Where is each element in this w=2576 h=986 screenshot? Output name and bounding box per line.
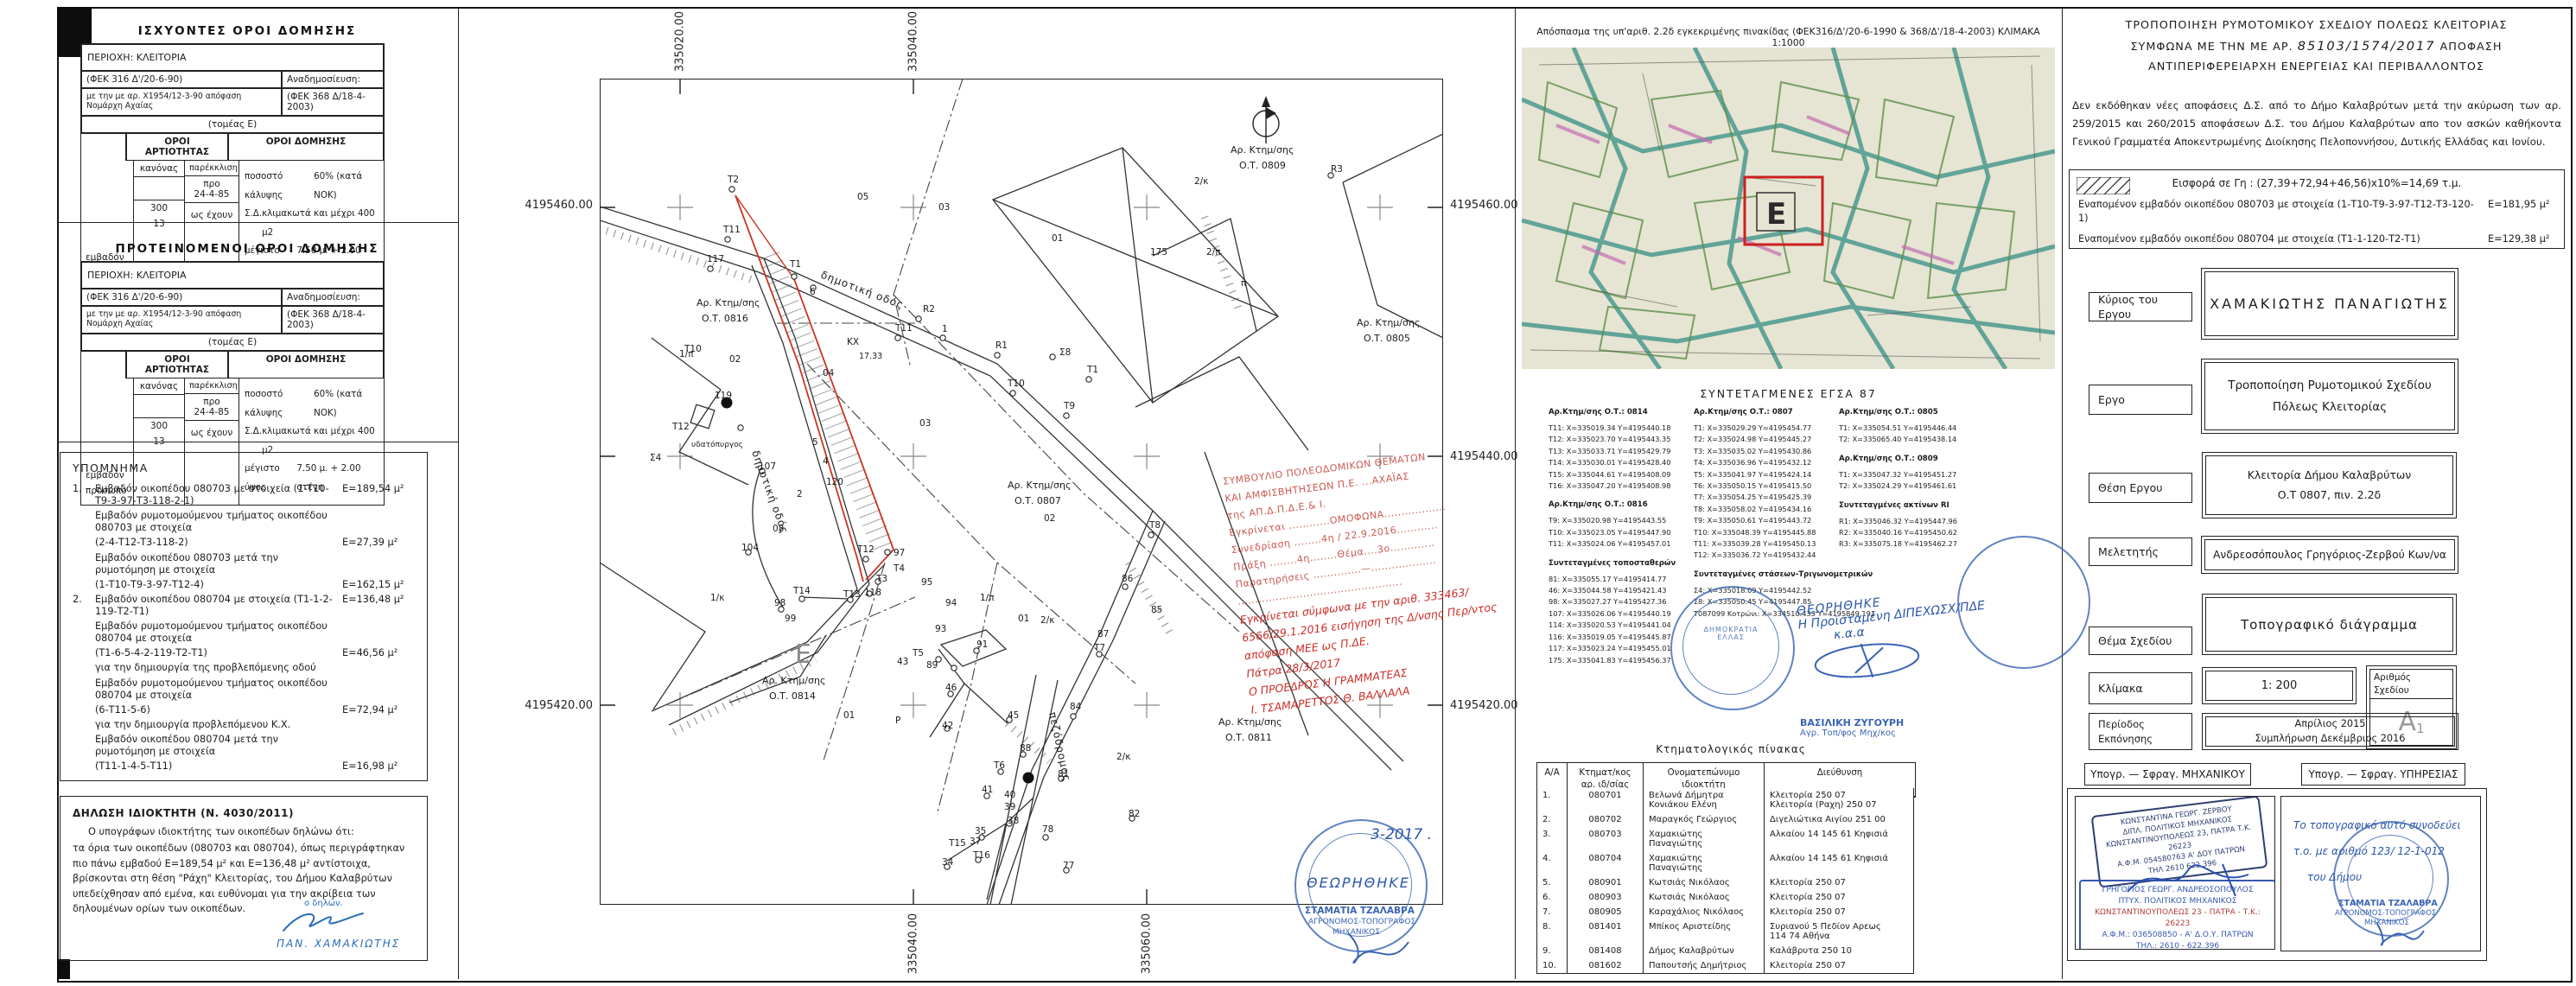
artiotita-header: ΟΡΟΙ ΑΡΤΙΟΤΗΤΑΣ [126, 133, 228, 161]
coord-group-header: Αρ.Κτημ/σης Ο.Τ.: 0807 [1694, 408, 1823, 417]
coord-row: Τ15: Χ=335044.61 Υ=4195408.09 [1549, 469, 1678, 480]
map-label: ΚΧ [847, 337, 859, 347]
coord-row: Τ2: Χ=335065.40 Υ=4195438.14 [1839, 434, 1969, 445]
legend-row: Εμβαδόν ρυμοτομούμενου τμήματος οικοπέδο… [73, 510, 417, 534]
coord-row: 98: Χ=335027.27 Υ=4195427.36 [1549, 596, 1678, 608]
coord-group-header: Συντεταγμένες τοποσταθερών [1549, 559, 1678, 568]
cadastre-row: 5. 080901 Κωτσιάς Νικόλαος Κλειτορία 250… [1537, 875, 1913, 890]
coord-row: R3: Χ=335075.18 Υ=4195462.27 [1839, 538, 1969, 550]
map-label: T3 [875, 574, 887, 584]
coord-row: Τ12: Χ=335036.72 Υ=4195432.44 [1694, 550, 1823, 561]
service-signature [2359, 918, 2428, 951]
coord-row: Τ1: Χ=335029.29 Υ=4195454.77 [1694, 423, 1823, 434]
tb-title3: ΑΝΤΙΠΕΡΙΦΕΡΕΙΑΡΧΗ ΕΝΕΡΓΕΙΑΣ ΚΑΙ ΠΕΡΙΒΑΛΛ… [2062, 60, 2571, 73]
declaration-box: ΔΗΛΩΣΗ ΙΔΙΟΚΤΗΤΗ (Ν. 4030/2011) Ο υπογρά… [60, 796, 428, 961]
map-label: T6 [993, 760, 1005, 771]
map-label: Σ8 [1059, 347, 1071, 358]
zoning-panel: ΙΣΧΥΟΝΤΕΣ ΟΡΟΙ ΔΟΜΗΣΗΣ ΠΕΡΙΟΧΗ: ΚΛΕΙΤΟΡΙ… [57, 7, 458, 979]
map-label: 87 [1097, 629, 1109, 639]
map-label: Αρ. Κτημ/σης [1231, 144, 1294, 156]
grid-label-bottom-1: 335040.00 [907, 913, 920, 974]
sig-header-service: Υπογρ. — Σφραγ. ΥΠΗΡΕΣΙΑΣ [2301, 763, 2465, 786]
legend-row: Εμβαδόν ρυμοτομούμενου τμήματος οικοπέδο… [73, 677, 417, 702]
map-label: 91 [976, 639, 988, 650]
engineer-stamp-box: ΚΩΝΣΤΑΝΤΙΝΑ ΓΕΩΡΓ. ΖΕΡΒΟΥΔΙΠΛ. ΠΟΛΙΤΙΚΟΣ… [2075, 796, 2275, 950]
field-value-period: Απρίλιος 2015 Συμπλήρωση Δεκέμβριος 2016 [2202, 713, 2458, 750]
map-label: 46 [945, 683, 957, 693]
map-label: T15 [948, 838, 966, 849]
map-label: 5 [812, 437, 818, 448]
map-label: 104 [741, 543, 759, 553]
coord-row: Τ10: Χ=335023.05 Υ=4195447.90 [1549, 527, 1678, 538]
legend-row: Εμβαδόν οικοπέδου 080703 μετά την ρυμοτό… [73, 552, 417, 576]
map-label: 40 [1004, 790, 1015, 800]
zoning-repub: Αναδημοσίευση: [282, 71, 384, 88]
map-label: 1/κ [710, 593, 724, 603]
coord-row: Τ3: Χ=335035.02 Υ=4195430.86 [1694, 446, 1823, 457]
coord-row: Τ8: Χ=335058.02 Υ=4195434.16 [1694, 504, 1823, 515]
legend-row: (Τ11-1-4-5-Τ11) Ε=16,98 μ² [73, 760, 417, 773]
zoning-sector: (τομέας Ε) [81, 116, 384, 133]
map-label: 02 [729, 354, 741, 365]
declaration-signature: ο δηλών. ΠΑΝ. ΧΑΜΑΚΙΩΤΗΣ [277, 899, 400, 950]
map-label: T9 [1063, 401, 1075, 411]
approval-stamp-red: ΣΥΜΒΟΥΛΙΟ ΠΟΛΕΟΔΟΜΙΚΩΝ ΘΕΜΑΤΩΝΚΑΙ ΑΜΦΙΣΒ… [1222, 436, 1561, 719]
map-label: 03 [919, 418, 931, 429]
map-label: 97 [894, 548, 905, 558]
map-label: 03 [938, 202, 950, 213]
prosopo-value: 13 [134, 216, 184, 238]
coordinates-panel: Απόσπασμα της υπ'αριθ. 2.2δ εγκεκριμένης… [1515, 0, 2062, 986]
field-label-location: Θέση Εργου [2089, 473, 2192, 503]
signature-scribble [277, 908, 380, 938]
coord-row: Τ7: Χ=335054.25 Υ=4195425.39 [1694, 492, 1823, 503]
legend-row: (Τ1-6-5-4-2-119-Τ2-Τ1) Ε=46,56 μ² [73, 647, 417, 659]
contribution-row: Εναπομένον εμβαδόν οικοπέδου 080703 με σ… [2078, 198, 2555, 226]
map-label: Αρ. Κτημ/σης [762, 675, 825, 686]
map-label: R3 [1331, 164, 1343, 175]
field-label-project: Εργο [2089, 385, 2192, 415]
current-terms-title: ΙΣΧΥΟΝΤΕΣ ΟΡΟΙ ΔΟΜΗΣΗΣ [57, 24, 437, 38]
map-label: 89 [926, 660, 938, 671]
coord-group-header: Αρ.Κτημ/σης Ο.Τ.: 0814 [1549, 408, 1678, 417]
decision-number-handwritten: 85103/1574/2017 [2298, 40, 2436, 54]
coord-row: Τ11: Χ=335024.06 Υ=4195457.01 [1549, 538, 1678, 550]
theorisi-stamp-blue: 3-2017 . ΘΕΩΡΗΘΗΚΕ ΣΤΑΜΑΤΙΑ ΤΖΑΛΑΒΡΑ ΑΓΡ… [1288, 795, 1495, 976]
map-label: 107 [759, 461, 776, 472]
map-label: 05 [857, 192, 868, 202]
map-label: 35 [975, 826, 986, 837]
map-label: Αρ. Κτημ/σης [1357, 317, 1420, 328]
coord-row: Τ10: Χ=335048.39 Υ=4195445.88 [1694, 527, 1823, 538]
map-label: 81 [1058, 769, 1069, 779]
legend-rows: 1. Εμβαδόν οικοπέδου 080703 με στοιχεία … [73, 483, 417, 773]
coord-row: 114: Χ=335020.53 Υ=4195441.04 [1549, 620, 1678, 631]
map-label: 1 [942, 324, 948, 334]
map-label: 2/κ [1116, 752, 1130, 762]
map-label: Σ4 [650, 453, 662, 463]
map-label: 42 [942, 721, 953, 731]
legend-box: ΥΠΟΜΝΗΜΑ 1. Εμβαδόν οικοπέδου 080703 με … [60, 452, 428, 781]
map-label: R1 [995, 340, 1008, 351]
stamp-date-handwritten: 3-2017 . [1371, 826, 1432, 843]
map-label: 82 [1129, 809, 1140, 819]
zoning-region: ΠΕΡΙΟΧΗ: ΚΛΕΙΤΟΡΙΑ [81, 44, 384, 71]
map-label: T2 [727, 175, 739, 185]
map-label: T8 [1148, 520, 1161, 531]
map-label: T11 [894, 323, 913, 334]
map-label: 2/κ [1194, 176, 1208, 187]
map-label: 08 [773, 524, 784, 534]
service-stamp-box: Το τοπογραφικό αυτό συνοδεύει τ.ο. με αρ… [2280, 796, 2481, 951]
legend-row: (1-Τ10-Τ9-3-97-Τ12-4) Ε=162,15 μ² [73, 579, 417, 591]
field-label-subject: Θέμα Σχεδίου [2089, 627, 2192, 655]
field-value-scale: 1: 200 [2202, 667, 2357, 704]
map-label: 01 [843, 710, 855, 721]
map-label: 99 [785, 614, 796, 624]
map-label: 86 [1122, 574, 1134, 584]
grid-label-top-1: 335020.00 [674, 11, 687, 72]
map-label: T10 [1007, 378, 1025, 389]
map-label: 98 [774, 598, 786, 608]
legend-row: για την δημιουργία της προβλεπόμενης οδο… [73, 662, 417, 674]
map-label: T16 [972, 850, 990, 861]
zygouri-name: ΒΑΣΙΛΙΚΗ ΖΥΓΟΥΡΗ Αγρ. Τοπ/φος Μηχ/κος [1800, 717, 1904, 738]
map-label: 85 [1151, 605, 1162, 615]
coord-row: 107: Χ=335026.06 Υ=4195440.19 [1549, 608, 1678, 620]
coord-row: Τ12: Χ=335023.70 Υ=4195443.35 [1549, 434, 1678, 445]
coord-row: Τ9: Χ=335020.98 Υ=4195443.55 [1549, 515, 1678, 526]
legend-row: για την δημιουργία προβλεπόμενου Κ.Χ. [73, 719, 417, 731]
grid-label-top-2: 335040.00 [907, 11, 920, 72]
legend-row: 2. Εμβαδόν οικοπέδου 080704 με στοιχεία … [73, 594, 417, 618]
cadastre-row: 4. 080704 Χαμακιώτης Παναγιώτης Αλκαίου … [1537, 851, 1913, 875]
legend-row: Εμβαδόν ρυμοτομούμενου τμήματος οικοπέδο… [73, 620, 417, 645]
map-label: 39 [1004, 802, 1015, 812]
map-label: Αρ. Κτημ/σης [1218, 716, 1282, 728]
legend-row: (6-Τ11-5-6) Ε=72,94 μ² [73, 704, 417, 716]
field-value-subject: Τοπογραφικό διάγραμμα [2202, 594, 2457, 655]
map-label: T7 [1093, 643, 1105, 653]
stamp-area: ΚΩΝΣΤΑΝΤΙΝΑ ΓΕΩΡΓ. ΖΕΡΒΟΥΔΙΠΛ. ΠΟΛΙΤΙΚΟΣ… [2067, 788, 2487, 961]
coord-row: R1: Χ=335046.32 Υ=4195447.96 [1839, 516, 1969, 527]
map-label: T12 [671, 422, 690, 432]
cadastre-title: Κτηματολογικός πίνακας [1515, 743, 1947, 755]
map-label: Αρ. Κτημ/σης [696, 297, 760, 309]
cadastre-row: 10. 081602 Παπουτσής Δημήτριος Κλειτορία… [1537, 958, 1913, 973]
coord-row: Τ2: Χ=335024.29 Υ=4195461.61 [1839, 480, 1969, 492]
excerpt-caption: Απόσπασμα της υπ'αριθ. 2.2δ εγκεκριμένης… [1523, 26, 2053, 48]
stamp-approved: ΘΕΩΡΗΘΗΚΕ [1307, 875, 1410, 891]
map-label: 45 [1008, 710, 1019, 721]
grid-label-left-1: 4195460.00 [482, 199, 593, 212]
coord-row: Τ9: Χ=335050.61 Υ=4195443.72 [1694, 515, 1823, 526]
emvadon-value: 300 [134, 200, 184, 216]
map-label: 84 [1070, 702, 1082, 712]
legend-row: Εμβαδόν οικοπέδου 080704 μετά την ρυμοτό… [73, 734, 417, 758]
map-label: 01 [1052, 233, 1063, 244]
coord-group-header: Συντεταγμένες ακτίνων RI [1839, 501, 1969, 510]
map-label: Ρ [895, 716, 900, 726]
tb-title2: ΣΥΜΦΩΝΑ ΜΕ ΤΗΝ ΜΕ ΑΡ. 85103/1574/2017 ΑΠ… [2062, 40, 2571, 54]
map-label: 37 [970, 837, 981, 847]
service-stamp-name: ΣΤΑΜΑΤΙΑ ΤΖΑΛΑΒΡΑ [2338, 899, 2438, 908]
coord-row: Τ11: Χ=335019.34 Υ=4195440.18 [1549, 423, 1678, 434]
map-label: υδατόπυργος [691, 440, 743, 449]
grid-label-right-1: 4195460.00 [1450, 199, 1518, 212]
coord-row: Τ5: Χ=335041.97 Υ=4195424.14 [1694, 469, 1823, 480]
cadastre-row: 1. 080701 Βελωνά Δήμητρα Κονιάκου Ελένη … [1537, 788, 1913, 812]
map-label: 43 [897, 657, 908, 667]
map-label: 38 [1008, 816, 1019, 826]
domisi-header: ΟΡΟΙ ΔΟΜΗΣΗΣ [228, 133, 384, 161]
map-label: T1 [1086, 365, 1098, 375]
map-label: 118 [864, 588, 881, 598]
survey-sheet: ΙΣΧΥΟΝΤΕΣ ΟΡΟΙ ΔΟΜΗΣΗΣ ΠΕΡΙΟΧΗ: ΚΛΕΙΤΟΡΙ… [0, 0, 2576, 986]
coord-row: 81: Χ=335055.17 Υ=4195414.77 [1549, 574, 1678, 585]
map-label: 1/π [980, 593, 995, 603]
map-label: 4 [823, 456, 829, 467]
cadastre-row: 9. 081408 Δήμος Καλαβρύτων Καλάβρυτα 250… [1537, 944, 1913, 958]
field-label-surveyor: Μελετητής [2089, 538, 2192, 566]
separator-1 [57, 222, 458, 223]
kalypsi-row: ποσοστό κάλυψης60% (κατά ΝΟΚ) [245, 168, 378, 205]
map-label: 6 [810, 287, 816, 297]
coord-row: Τ2: Χ=335024.98 Υ=4195445.27 [1694, 434, 1823, 445]
map-label: T1 [789, 259, 801, 270]
coord-group-header: Αρ.Κτημ/σης Ο.Τ.: 0809 [1839, 455, 1969, 463]
map-label: 120 [826, 477, 843, 487]
sig-header-engineer: Υπογρ. — Σφραγ. ΜΗΧΑΝΙΚΟΥ [2084, 763, 2251, 786]
titleblock-panel: ΤΡΟΠΟΠΟΙΗΣΗ ΡΥΜΟΤΟΜΙΚΟΥ ΣΧΕΔΙΟΥ ΠΟΛΕΩΣ Κ… [2062, 0, 2571, 986]
field-label-period: Περίοδος Εκπόνησης [2089, 713, 2192, 750]
service-stamp-role1: ΑΓΡΟΝΟΜΟΣ-ΤΟΠΟΓΡΑΦΟΣ [2335, 909, 2436, 918]
coord-row: 116: Χ=335019.05 Υ=4195445.87 [1549, 632, 1678, 643]
coord-row: Τ6: Χ=335050.15 Υ=4195415.50 [1694, 480, 1823, 492]
map-label: Ο.Τ. 0807 [1014, 495, 1061, 506]
map-label: T12 [856, 544, 875, 555]
zoning-fek1: (ΦΕΚ 316 Δ'/20-6-90) [81, 71, 282, 88]
map-label: 41 [982, 785, 993, 795]
cadastre-row: 2. 080702 Μαραγκός Γεώργιος Διγελιώτικα … [1537, 812, 1913, 827]
ellipse-signature [1800, 633, 1933, 689]
map-label: 94 [945, 598, 957, 608]
coord-row: Τ16: Χ=335047.20 Υ=4195408.98 [1549, 480, 1678, 492]
map-label: 04 [823, 368, 835, 378]
map-label: 119 [715, 391, 732, 401]
proposed-terms-title: ΠΡΟΤΕΙΝΟΜΕΝΟΙ ΟΡΟΙ ΔΟΜΗΣΗΣ [57, 242, 437, 256]
map-label: T14 [792, 586, 811, 596]
theorithike-handwriting: ΘΕΩΡΗΘΗΚΕ Η Προϊσταμένη ΔΙΠΕΧΩΣΧ/ΠΔΕ κ.α… [1796, 585, 1992, 692]
separator-2 [57, 442, 458, 442]
ws-exoun: ως έχουν [185, 202, 239, 223]
hatch-swatch [2077, 177, 2130, 194]
map-label: π [1241, 278, 1247, 289]
field-value-project: Τροποποίηση Ρυμοτομικού Σχεδίου Πόλεως Κ… [2201, 359, 2458, 434]
map-label: 2 [797, 489, 803, 499]
drawing-number-label: Αριθμός Σχεδίου [2370, 670, 2452, 699]
coords-title: ΣΥΝΤΕΤΑΓΜΕΝΕΣ ΕΓΣΑ 87 [1515, 387, 2062, 400]
coord-row: Τ11: Χ=335039.28 Υ=4195450.13 [1694, 538, 1823, 550]
map-panel: 335020.00 335040.00 335040.00 335060.00 … [458, 0, 1515, 986]
coord-row: Τ14: Χ=335030.01 Υ=4195428.40 [1549, 457, 1678, 468]
coord-group-header: Συντεταγμένες στάσεων-Τριγωνομετρικών [1694, 570, 1823, 579]
map-label: T5 [912, 648, 924, 658]
stamp-name: ΣΤΑΜΑΤΙΑ ΤΖΑΛΑΒΡΑ [1305, 906, 1415, 916]
map-label: Ε [795, 639, 811, 670]
contribution-rows: Εναπομένον εμβαδόν οικοπέδου 080703 με σ… [2078, 198, 2555, 245]
zoning-decision: με την με αρ. Χ1954/12-3-90 απόφαση Νομά… [81, 88, 282, 116]
zoning-fek2: (ΦΕΚ 368 Δ/18-4-2003) [282, 88, 384, 116]
map-label: 02 [1044, 513, 1055, 524]
map-label: 88 [1020, 743, 1031, 754]
field-value-surveyor: Ανδρεοσόπουλος Γρηγόριος-Ζερβού Κων/να [2201, 536, 2458, 574]
legend-row: (2-4-Τ12-Τ3-118-2) Ε=27,39 μ² [73, 537, 417, 549]
coord-row: Τ1: Χ=335054.51 Υ=4195446.44 [1839, 423, 1969, 434]
grid-label-bottom-2: 335060.00 [1141, 913, 1154, 974]
map-label: 95 [921, 577, 932, 588]
stamp-andreosopoulos: ΓΡΗΓΟΡΙΟΣ ΓΕΩΡΓ. ΑΝΔΡΕΟΣΟΠΟΥΛΟΣΠΤΥΧ. ΠΟΛ… [2079, 880, 2275, 950]
cadastre-rows: 1. 080701 Βελωνά Δήμητρα Κονιάκου Ελένη … [1536, 788, 1914, 974]
map-label: 17.33 [859, 352, 882, 361]
tb-note: Δεν εκδόθηκαν νέες αποφάσεις Δ.Σ. από το… [2072, 97, 2561, 152]
pro-date: προ 24-4-85 [185, 176, 239, 202]
coord-row: 175: Χ=335041.83 Υ=4195456.37 [1549, 655, 1678, 666]
map-label: 93 [935, 624, 946, 634]
cadastre-row: 6. 080903 Κωτσιάς Νικόλαος Κλειτορία 250… [1537, 890, 1913, 905]
plan-excerpt-image: Ε [1522, 48, 2055, 369]
parekklisi-header: παρέκκλιση [185, 161, 239, 176]
map-label: 01 [1018, 614, 1029, 624]
coord-group-header: Αρ.Κτημ/σης Ο.Τ.: 0816 [1549, 500, 1678, 509]
map-label: Αρ. Κτημ/σης [1008, 480, 1071, 491]
map-label: Ο.Τ. 0814 [769, 690, 816, 702]
map-label: 78 [1042, 824, 1053, 835]
excerpt-block-letter: Ε [1766, 197, 1786, 232]
map-label: 175 [1150, 247, 1167, 258]
field-value-owner: ΧΑΜΑΚΙΩΤΗΣ ΠΑΝΑΓΙΩΤΗΣ [2201, 268, 2458, 340]
map-label: T4 [893, 563, 905, 574]
coord-group-header: Αρ.Κτημ/σης Ο.Τ.: 0805 [1839, 408, 1969, 417]
field-value-location: Κλειτορία Δήμου Καλαβρύτων Ο.Τ 0807, πιν… [2202, 452, 2457, 518]
contribution-line1: Εισφορά σε Γη : (27,39+72,94+46,56)x10%=… [2078, 177, 2555, 189]
map-label: Ο.Τ. 0816 [702, 313, 748, 324]
map-label: R2 [923, 304, 935, 315]
grid-label-left-3: 4195420.00 [482, 699, 593, 712]
cadastre-row: 8. 081401 Μπίκος Αριστείδης Συριανού 5 Π… [1537, 919, 1913, 944]
coord-row: Τ13: Χ=335033.71 Υ=4195429.79 [1549, 446, 1678, 457]
kanonas-header: κανόνας [134, 161, 184, 177]
map-label: Ο.Τ. 0805 [1364, 333, 1410, 344]
map-label: Ο.Τ. 0811 [1225, 732, 1272, 743]
contribution-row: Εναπομένον εμβαδόν οικοπέδου 080704 με σ… [2078, 232, 2555, 246]
contribution-box: Εισφορά σε Γη : (27,39+72,94+46,56)x10%=… [2069, 169, 2565, 249]
map-label: T10 [684, 344, 702, 354]
stamp-signature-scribble [1322, 925, 1426, 976]
map-label: 117 [707, 254, 724, 264]
sd-row: Σ.Δ.κλιμακωτά και μέχρι 400 μ2 [245, 205, 378, 242]
coord-row: 46: Χ=335044.58 Υ=4195421.43 [1549, 585, 1678, 596]
tb-title1: ΤΡΟΠΟΠΟΙΗΣΗ ΡΥΜΟΤΟΜΙΚΟΥ ΣΧΕΔΙΟΥ ΠΟΛΕΩΣ Κ… [2062, 19, 2571, 32]
map-label: 77 [1063, 861, 1074, 871]
legend-row: 1. Εμβαδόν οικοπέδου 080703 με στοιχεία … [73, 483, 417, 507]
coord-column: Αρ.Κτημ/σης Ο.Τ.: 0814Τ11: Χ=335019.34 Υ… [1549, 399, 1678, 666]
legend-title: ΥΠΟΜΝΗΜΑ [73, 461, 417, 474]
map-label: Ο.Τ. 0809 [1239, 160, 1286, 171]
cadastre-row: 7. 080905 Καραχάλιος Νικόλαος Κλειτορία … [1537, 905, 1913, 919]
map-label: T13 [843, 589, 861, 600]
map-label: 34 [942, 857, 954, 868]
map-label: 2/κ [1040, 615, 1054, 626]
coord-row: Τ1: Χ=335047.32 Υ=4195451.27 [1839, 469, 1969, 480]
coord-row: Τ4: Χ=335036.96 Υ=4195432.12 [1694, 457, 1823, 468]
coord-row: 117: Χ=335023.24 Υ=4195455.01 [1549, 643, 1678, 654]
grid-label-right-3: 4195420.00 [1450, 699, 1518, 712]
cadastre-row: 3. 080703 Χαμακιώτης Παναγιώτης Αλκαίου … [1537, 827, 1913, 851]
field-label-owner: Κύριος του Εργου [2089, 292, 2192, 321]
coord-row: R2: Χ=335040.16 Υ=4195450.62 [1839, 527, 1969, 538]
map-label: 2/π [1206, 247, 1221, 258]
field-label-scale: Κλίμακα [2089, 672, 2192, 704]
declaration-intro: Ο υπογράφων ιδιοκτήτης των οικοπέδων δηλ… [73, 826, 415, 837]
map-label: T11 [722, 225, 741, 235]
declaration-title: ΔΗΛΩΣΗ ΙΔΙΟΚΤΗΤΗ (Ν. 4030/2011) [73, 807, 415, 819]
